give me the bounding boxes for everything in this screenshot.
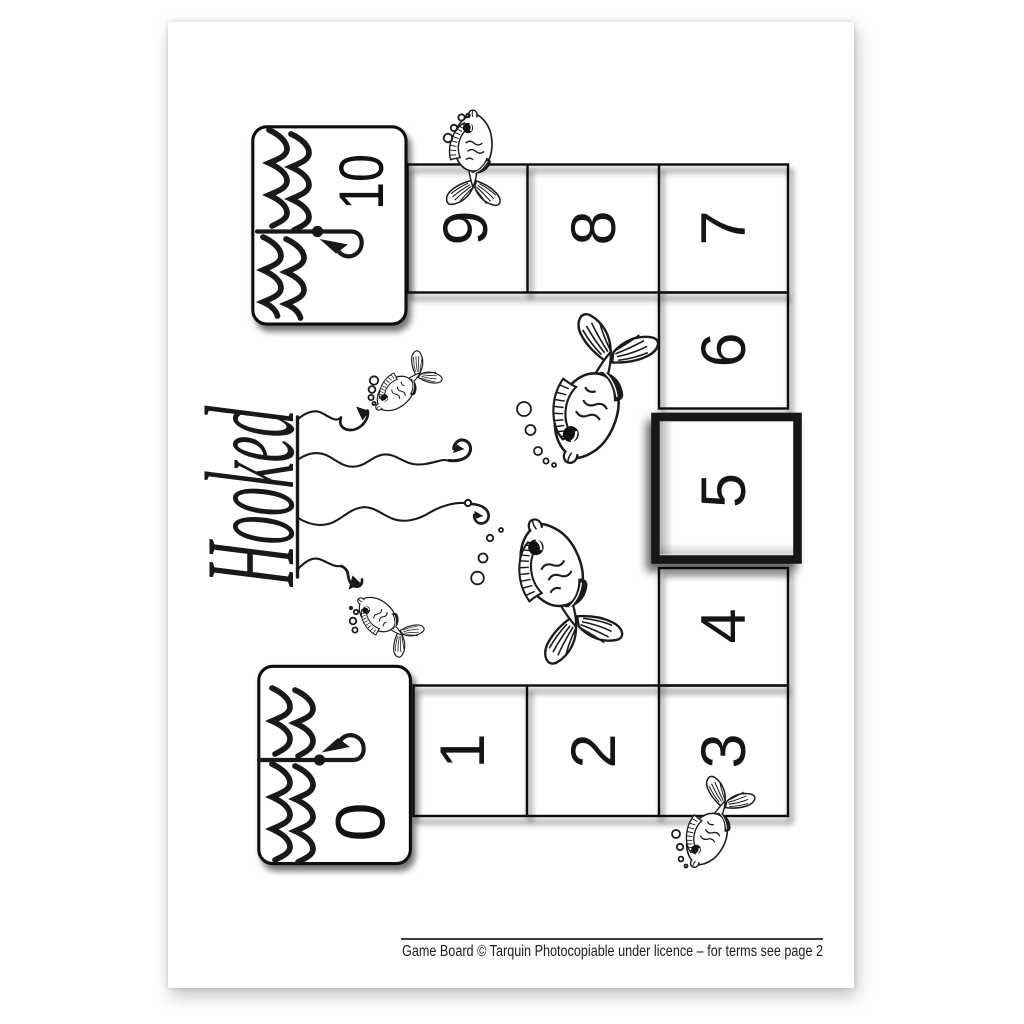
svg-text:Game Board © Tarquin Photocopi: Game Board © Tarquin Photocopiable under… (402, 943, 823, 960)
svg-text:9: 9 (431, 210, 501, 245)
svg-text:6: 6 (689, 332, 759, 367)
svg-text:4: 4 (689, 608, 759, 643)
svg-text:2: 2 (559, 733, 629, 768)
svg-text:3: 3 (689, 733, 759, 768)
svg-text:1: 1 (428, 733, 498, 768)
svg-text:Hooked: Hooked (181, 404, 322, 589)
svg-text:5: 5 (689, 473, 759, 508)
svg-text:7: 7 (689, 210, 759, 245)
svg-text:8: 8 (559, 210, 629, 245)
svg-text:0: 0 (322, 803, 400, 842)
svg-text:10: 10 (327, 154, 397, 210)
